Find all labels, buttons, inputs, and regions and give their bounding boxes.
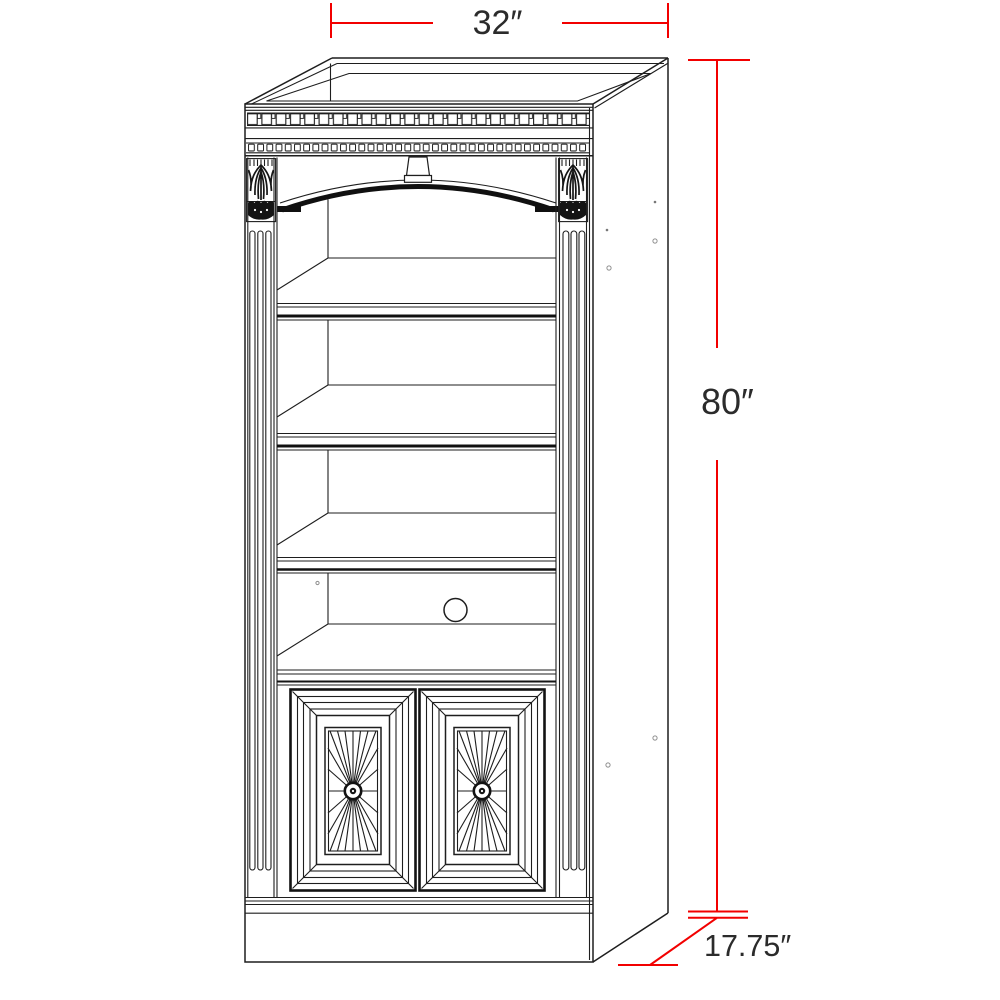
right-door-rosette (474, 783, 490, 799)
shelf-pin-hole (316, 581, 319, 584)
left-pilaster (248, 158, 277, 898)
side-panel (590, 58, 669, 962)
shelf-2 (277, 385, 556, 450)
left-door-rosette (345, 783, 361, 799)
right-pilaster (556, 158, 587, 898)
left-door (291, 690, 416, 891)
cabinet-drawing (245, 58, 668, 962)
width-dimension: 32″ (331, 3, 668, 42)
right-door (420, 690, 545, 891)
media-opening (316, 581, 467, 621)
depth-dimension: 17.75″ (618, 918, 791, 965)
right-corbel (559, 159, 588, 222)
keystone (405, 157, 432, 182)
base-plinth (245, 898, 593, 914)
width-dimension-label: 32″ (473, 4, 523, 42)
cable-grommet-hole (444, 599, 467, 622)
left-corbel (247, 159, 276, 222)
side-pin-holes (606, 201, 657, 767)
height-dimension-label: 80″ (701, 381, 754, 422)
crown-molding (245, 107, 593, 155)
shelf-3 (277, 513, 556, 573)
fixed-shelf (277, 624, 556, 685)
depth-dimension-label: 17.75″ (704, 929, 791, 963)
shelf-1 (277, 258, 556, 320)
dentil-row-large (247, 113, 589, 125)
bookcase-dimension-drawing: 32″ 80″ 17.75″ (0, 0, 1000, 1000)
diagram-page: 32″ 80″ 17.75″ (0, 0, 1000, 1000)
arched-valance (278, 180, 559, 210)
dentil-row-small (248, 143, 589, 153)
height-dimension: 80″ (688, 60, 754, 912)
